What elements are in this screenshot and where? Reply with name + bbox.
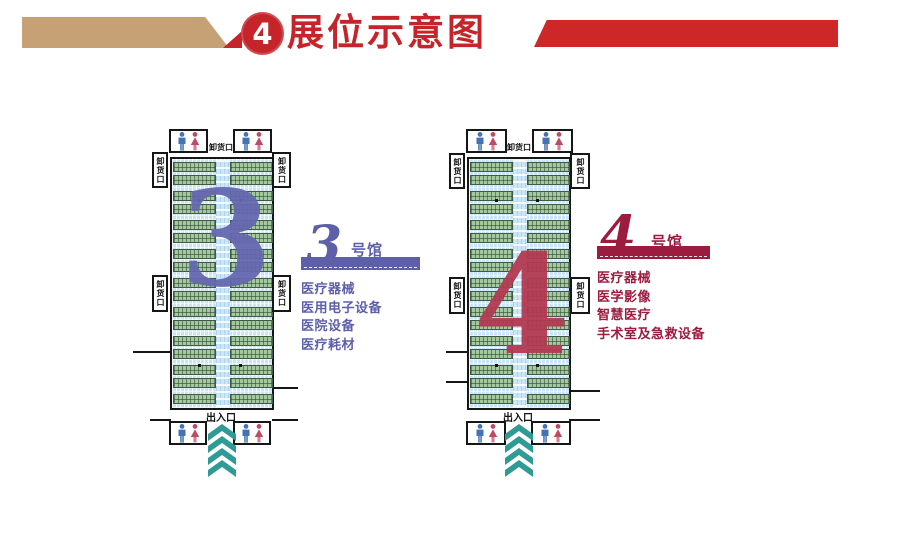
wall-line xyxy=(569,419,600,421)
male-restroom-icon xyxy=(541,132,551,151)
booth-row xyxy=(173,349,216,359)
category-item: 手术室及急救设备 xyxy=(597,326,705,345)
booth-layout-diagram: 4 展位示意图 3 卸货口 卸货口 卸货口 卸货口 卸货口 出入口 xyxy=(0,0,910,541)
female-restroom-icon xyxy=(554,132,564,151)
hall3-dock-right-top: 卸货口 xyxy=(272,152,291,188)
header-banner-left xyxy=(22,17,229,48)
booth-row xyxy=(527,162,570,172)
hall4-big-number: 4 xyxy=(472,235,572,375)
female-restroom-icon xyxy=(190,132,200,151)
category-item: 智慧医疗 xyxy=(597,307,705,326)
category-item: 医疗器械 xyxy=(301,281,382,300)
wall-line xyxy=(569,390,600,392)
wall-line xyxy=(133,351,171,353)
booth-row xyxy=(470,191,513,201)
female-restroom-icon xyxy=(190,424,200,443)
booth-row xyxy=(230,336,273,346)
section-number-badge: 4 xyxy=(241,12,284,55)
page-title: 展位示意图 xyxy=(287,13,487,53)
hall4-restroom-bottom-left xyxy=(466,421,506,445)
dock-label: 卸货口 xyxy=(576,158,584,185)
booth-row xyxy=(173,378,216,388)
booth-row xyxy=(230,349,273,359)
male-restroom-icon xyxy=(241,132,251,151)
hall3-dock-left-top: 卸货口 xyxy=(152,152,168,188)
male-restroom-icon xyxy=(177,424,187,443)
category-item: 医学影像 xyxy=(597,289,705,308)
hall3-dock-left-mid: 卸货口 xyxy=(152,275,168,312)
category-item: 医院设备 xyxy=(301,318,382,337)
pillar xyxy=(239,364,242,367)
booth-row xyxy=(527,175,570,185)
hall4-unloading-label-top: 卸货口 xyxy=(506,142,532,153)
hall4-category-list: 医疗器械医学影像智慧医疗手术室及急救设备 xyxy=(597,270,705,344)
category-item: 医用电子设备 xyxy=(301,300,382,319)
female-restroom-icon xyxy=(254,132,264,151)
chevron-up-arrows-icon xyxy=(207,424,237,477)
category-item: 医疗耗材 xyxy=(301,337,382,356)
pillar xyxy=(536,199,539,202)
booth-row xyxy=(527,204,570,214)
booth-row xyxy=(230,365,273,375)
bar-dashed-line xyxy=(600,256,707,257)
dock-label: 卸货口 xyxy=(156,157,164,184)
hall3-restroom-bottom-left xyxy=(169,421,207,445)
hall4-dock-left-top: 卸货口 xyxy=(449,153,465,189)
hall4-restroom-top-left xyxy=(466,129,507,153)
booth-row xyxy=(527,191,570,201)
male-restroom-icon xyxy=(475,424,485,443)
pillar xyxy=(495,199,498,202)
dock-label: 卸货口 xyxy=(278,280,286,307)
booth-row xyxy=(173,336,216,346)
female-restroom-icon xyxy=(488,132,498,151)
hall3-label-bar xyxy=(301,257,420,270)
female-restroom-icon xyxy=(553,424,563,443)
hall4-dock-right-mid: 卸货口 xyxy=(570,277,590,314)
booth-row xyxy=(470,394,513,404)
hall4-dock-right-top: 卸货口 xyxy=(570,153,590,189)
wall-line xyxy=(274,387,298,389)
booth-row xyxy=(470,204,513,214)
dock-label: 卸货口 xyxy=(156,280,164,307)
bar-dashed-line xyxy=(304,267,417,268)
hall3-unloading-label-top: 卸货口 xyxy=(208,142,234,153)
hall4-restroom-bottom-right xyxy=(531,421,571,445)
booth-row xyxy=(470,175,513,185)
hall3-dock-right-mid: 卸货口 xyxy=(272,275,291,312)
female-restroom-icon xyxy=(488,424,498,443)
hall3-restroom-bottom-right xyxy=(233,421,271,445)
chevron-up-arrows-icon xyxy=(504,424,534,477)
booth-row xyxy=(470,162,513,172)
hall4-dock-left-mid: 卸货口 xyxy=(449,277,465,314)
booth-row xyxy=(230,378,273,388)
male-restroom-icon xyxy=(540,424,550,443)
wall-line xyxy=(272,419,298,421)
pillar xyxy=(198,364,201,367)
hall4-restroom-top-right xyxy=(532,129,573,153)
hall3-restroom-top-left xyxy=(169,129,208,153)
booth-row xyxy=(230,394,273,404)
booth-row xyxy=(173,394,216,404)
booth-row xyxy=(527,394,570,404)
header-banner-fold xyxy=(223,31,242,48)
male-restroom-icon xyxy=(475,132,485,151)
female-restroom-icon xyxy=(254,424,264,443)
hall3-big-number: 3 xyxy=(178,172,274,307)
wall-line xyxy=(446,351,469,353)
dock-label: 卸货口 xyxy=(453,158,461,185)
header-banner-right xyxy=(534,20,838,47)
hall4-label-bar xyxy=(597,246,710,259)
wall-line xyxy=(446,381,469,383)
category-item: 医疗器械 xyxy=(597,270,705,289)
dock-label: 卸货口 xyxy=(278,157,286,184)
booth-row xyxy=(173,320,216,330)
hall3-restroom-top-right xyxy=(233,129,272,153)
hall3-category-list: 医疗器械医用电子设备医院设备医疗耗材 xyxy=(301,281,382,355)
booth-row xyxy=(173,365,216,375)
wall-line xyxy=(150,419,171,421)
dock-label: 卸货口 xyxy=(576,282,584,309)
booth-row xyxy=(230,320,273,330)
male-restroom-icon xyxy=(241,424,251,443)
dock-label: 卸货口 xyxy=(453,282,461,309)
male-restroom-icon xyxy=(177,132,187,151)
